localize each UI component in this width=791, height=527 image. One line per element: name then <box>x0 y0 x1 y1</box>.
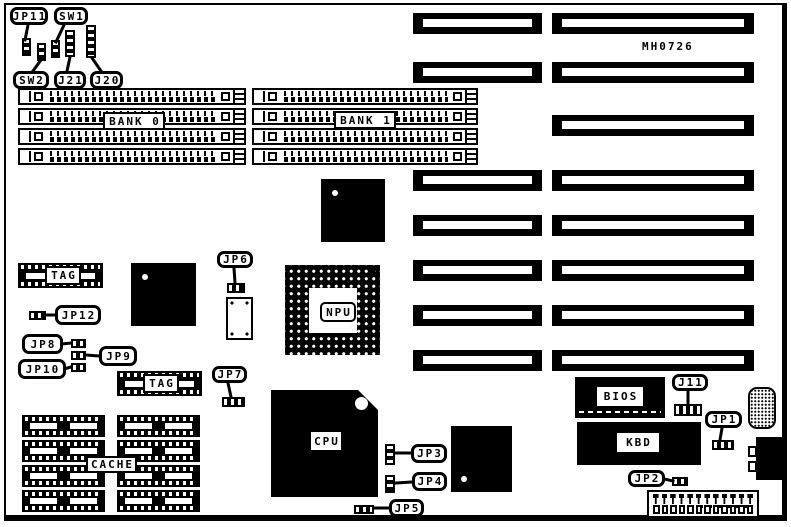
bank1-label: BANK 1 <box>334 111 396 129</box>
cache-label: CACHE <box>86 456 137 473</box>
callout-jp2: JP2 <box>628 470 665 487</box>
callout-sw2: SW2 <box>13 71 49 89</box>
callout-jp7: JP7 <box>212 366 247 383</box>
callout-jp8: JP8 <box>22 334 63 354</box>
callout-jp4: JP4 <box>412 472 447 491</box>
tag-upper-label: TAG <box>45 266 81 285</box>
bios-label: BIOS <box>597 387 643 406</box>
kbd-label: KBD <box>617 433 659 452</box>
bank0-label: BANK 0 <box>103 112 165 130</box>
callout-jp9: JP9 <box>99 346 137 366</box>
callout-jp1: JP1 <box>705 411 742 428</box>
cpu-label: CPU <box>311 432 341 450</box>
npu-label: NPU <box>320 302 356 322</box>
callout-j11: J11 <box>672 374 708 391</box>
callout-jp12: JP12 <box>55 305 101 325</box>
motherboard-diagram: JP11 SW1 SW2 J21 J20 BANK 0 BANK 1 MH072… <box>0 0 791 527</box>
callout-jp10: JP10 <box>18 359 66 379</box>
callout-j20: J20 <box>90 71 123 89</box>
tag-lower-label: TAG <box>143 374 179 393</box>
callout-jp11: JP11 <box>10 7 48 25</box>
callout-jp5: JP5 <box>389 499 424 517</box>
callout-jp3: JP3 <box>411 444 447 463</box>
callout-sw1: SW1 <box>54 7 88 25</box>
callout-jp6: JP6 <box>217 251 253 268</box>
callout-j21: J21 <box>54 71 86 89</box>
